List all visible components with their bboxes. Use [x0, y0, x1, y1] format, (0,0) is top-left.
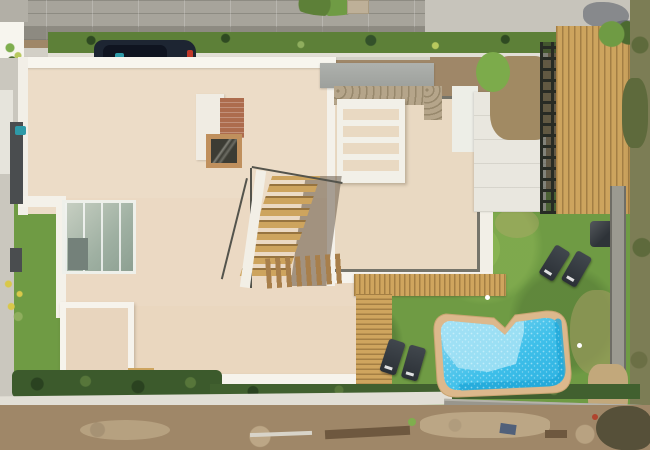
meter-box: [15, 126, 26, 135]
entrance-canopy: [320, 63, 434, 88]
skylight: [206, 134, 242, 168]
staircase-balusters: [265, 253, 345, 288]
deck-walkway: [356, 294, 392, 390]
white-pergola: [337, 99, 405, 183]
utility-box: [347, 0, 369, 14]
flower-bed: [0, 274, 28, 324]
construction-debris: [545, 430, 567, 438]
ground-light: [485, 295, 490, 300]
grass-patch: [476, 52, 510, 92]
bush: [622, 78, 648, 148]
roof-step-edge: [18, 196, 62, 207]
terrace: [60, 302, 134, 376]
gate-wall: [0, 0, 28, 22]
sand-patch: [420, 412, 550, 438]
stone-wall-corner: [424, 86, 442, 120]
deck-walkway: [354, 274, 506, 296]
construction-debris: [499, 423, 516, 435]
pool-svg: [428, 302, 580, 404]
dry-grass-patch: [495, 208, 539, 238]
debris-speck: [408, 418, 416, 426]
brick-chimney: [220, 98, 244, 138]
vegetation-strip: [630, 0, 650, 450]
roof-parapet-top: [24, 57, 336, 68]
boundary-wall-right: [610, 186, 626, 378]
tree-shadow: [596, 406, 650, 450]
aerial-villa-photo: [0, 0, 650, 450]
glass-atrium-pane: [68, 238, 88, 270]
facade-window-shadow: [10, 248, 22, 272]
swimming-pool: [428, 302, 580, 404]
sand-patch: [80, 420, 170, 440]
